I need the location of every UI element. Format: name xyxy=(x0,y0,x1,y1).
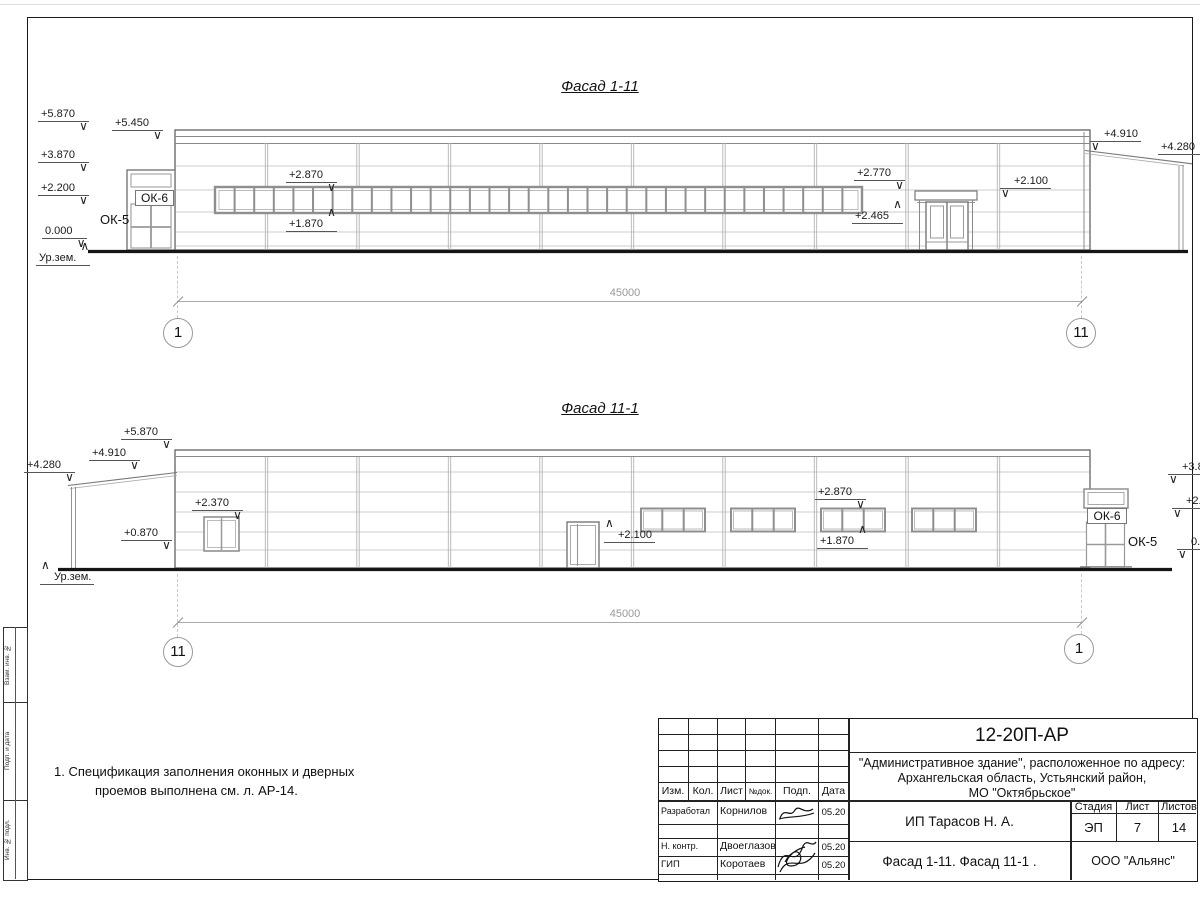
col-header-izm: Изм. xyxy=(658,783,688,799)
sheet-title: Фасад 1-11. Фасад 11-1 . xyxy=(850,843,1069,879)
sheets-value: 14 xyxy=(1159,814,1199,840)
name-cell: Корнилов xyxy=(720,805,774,819)
elevation-arrow-icon xyxy=(79,195,88,205)
company-name: ООО "Альянс" xyxy=(1071,843,1195,879)
window-tag-ok6: ОК-6 xyxy=(135,190,174,206)
col-header-podp: Подп. xyxy=(776,783,818,799)
elevation-mark: +2.100 xyxy=(604,529,655,543)
elevation-arrow-icon xyxy=(233,510,242,520)
dimension-line xyxy=(178,622,1082,623)
elevation-mark: 0.000 xyxy=(42,225,87,239)
sheets-label: Листов xyxy=(1159,800,1199,813)
col-header-kol: Кол. xyxy=(689,783,717,799)
titleblock-grid-line xyxy=(658,750,848,751)
titleblock-grid-line xyxy=(658,766,848,767)
note-line-1: 1. Спецификация заполнения оконных и две… xyxy=(54,764,354,779)
elevation-arrow-icon xyxy=(327,182,336,192)
elevation-arrow-icon xyxy=(893,199,902,209)
elevation-mark: +3.870 xyxy=(1168,461,1200,475)
elevation-arrow-icon xyxy=(1169,474,1178,484)
titleblock-grid-line xyxy=(658,734,848,735)
doc-number: 12-20П-АР xyxy=(850,720,1194,751)
elevation-arrow-icon xyxy=(1091,141,1100,151)
elevation-mark: +2.370 xyxy=(192,497,243,511)
three-pane-window xyxy=(912,509,976,532)
extension-line xyxy=(177,574,178,637)
elevation-mark: +2.870 xyxy=(286,169,337,183)
facade-11-1-title: Фасад 11-1 xyxy=(500,400,700,417)
elevation-arrow-icon xyxy=(130,460,139,470)
elevation-arrow-icon xyxy=(1178,549,1187,559)
elevation-mark: +5.450 xyxy=(112,117,163,131)
elevation-arrow-icon xyxy=(65,472,74,482)
elevation-arrow-icon xyxy=(162,439,171,449)
entrance-vestibule-right xyxy=(1084,489,1128,508)
extension-line xyxy=(1081,574,1082,634)
project-line-1: "Административное здание", расположенное… xyxy=(850,755,1194,770)
titleblock-grid-line xyxy=(658,838,848,839)
elevation-mark: +2.200 xyxy=(1172,495,1200,509)
role-cell: Н. контр. xyxy=(661,841,716,855)
elevation-mark: +1.870 xyxy=(817,535,868,549)
elevation-arrow-icon xyxy=(856,499,865,509)
extension-line xyxy=(1081,256,1082,318)
elevation-mark: +2.200 xyxy=(38,182,89,196)
role-cell: Разработал xyxy=(661,806,716,820)
extension-line xyxy=(177,256,178,318)
date-cell: 05.20 xyxy=(819,840,848,854)
dimension-line xyxy=(178,301,1082,302)
elevation-arrow-icon xyxy=(605,518,614,528)
side-column-label: Инв. № подл. xyxy=(4,802,15,877)
date-cell: 05.20 xyxy=(819,858,848,872)
side-column-label: Взам. инв. № xyxy=(4,629,15,701)
elevation-mark: +4.280 xyxy=(24,459,75,473)
elevation-arrow-icon xyxy=(1001,188,1010,198)
col-header-list: Лист xyxy=(718,783,745,799)
elevation-mark: 0.000 xyxy=(1177,536,1200,550)
stage-label: Стадия xyxy=(1071,800,1116,813)
elevation-arrow-icon xyxy=(1173,508,1182,518)
note-line-2: проемов выполнена см. л. АР-14. xyxy=(95,783,298,798)
titleblock-grid-line xyxy=(658,824,848,825)
three-pane-window xyxy=(731,509,795,532)
axis-bubble: 1 xyxy=(163,318,193,348)
sheet-label: Лист xyxy=(1117,800,1158,813)
sheet-value: 7 xyxy=(1117,814,1158,840)
signature-1 xyxy=(777,803,817,823)
drawing-sheet: Фасад 1-11 +5.870 +5.450 +3.870 +2.200 0… xyxy=(0,0,1200,900)
dimension-value: 45000 xyxy=(560,608,690,620)
titleblock-grid-line xyxy=(658,874,848,875)
elevation-mark: +5.870 xyxy=(121,426,172,440)
ground-level-label: Ур.зем. xyxy=(40,571,94,585)
ground-level-label: Ур.зем. xyxy=(36,252,90,266)
project-line-2: Архангельская область, Устьянский район, xyxy=(850,770,1194,785)
elevation-mark: +0.870 xyxy=(121,527,172,541)
elevation-mark: +3.870 xyxy=(38,149,89,163)
elevation-mark: +2.465 xyxy=(852,210,903,224)
elevation-mark: +2.870 xyxy=(815,486,866,500)
titleblock-grid-line xyxy=(848,752,1196,753)
axis-bubble: 11 xyxy=(1066,318,1096,348)
elevation-mark: +5.870 xyxy=(38,108,89,122)
window-tag-ok5: ОК-5 xyxy=(100,212,129,227)
project-line-3: МО "Октябрьское" xyxy=(850,785,1194,800)
three-pane-window xyxy=(821,509,885,532)
axis-bubble: 11 xyxy=(163,637,193,667)
elevation-arrow-icon xyxy=(858,524,867,534)
elevation-arrow-icon xyxy=(81,241,90,251)
elevation-mark: +4.280 xyxy=(1158,141,1200,155)
elevation-arrow-icon xyxy=(79,121,88,131)
door-canopy xyxy=(915,191,977,200)
name-cell: Коротаев xyxy=(720,858,774,872)
signature-2 xyxy=(774,835,818,877)
axis-bubble: 1 xyxy=(1064,634,1094,664)
side-column-divider xyxy=(15,627,16,879)
elevation-arrow-icon xyxy=(895,180,904,190)
elevation-mark: +4.910 xyxy=(89,447,140,461)
elevation-arrow-icon xyxy=(41,560,50,570)
side-door xyxy=(567,522,599,568)
elevation-mark: +2.770 xyxy=(854,167,905,181)
dimension-value: 45000 xyxy=(560,287,690,299)
facade-1-11-title: Фасад 1-11 xyxy=(500,78,700,95)
elevation-arrow-icon xyxy=(327,207,336,217)
elevation-mark: +1.870 xyxy=(286,218,337,232)
date-cell: 05.20 xyxy=(819,805,848,819)
window-tag-ok5: ОК-5 xyxy=(1128,534,1157,549)
side-column-label: Подп. и дата xyxy=(4,704,15,798)
name-cell: Двоеглазов xyxy=(720,840,776,854)
col-header-data: Дата xyxy=(819,783,848,799)
elevation-arrow-icon xyxy=(79,162,88,172)
client-name: ИП Тарасов Н. А. xyxy=(850,802,1069,840)
window-tag-ok6: ОК-6 xyxy=(1087,508,1127,524)
elevation-mark: +2.100 xyxy=(1000,175,1051,189)
titleblock-grid-line xyxy=(658,856,848,857)
stage-value: ЭП xyxy=(1071,814,1116,840)
elevation-mark: +4.910 xyxy=(1090,128,1141,142)
elevation-arrow-icon xyxy=(153,130,162,140)
col-header-ndok: №док. xyxy=(746,783,775,799)
elevation-arrow-icon xyxy=(162,540,171,550)
role-cell: ГИП xyxy=(661,859,716,873)
